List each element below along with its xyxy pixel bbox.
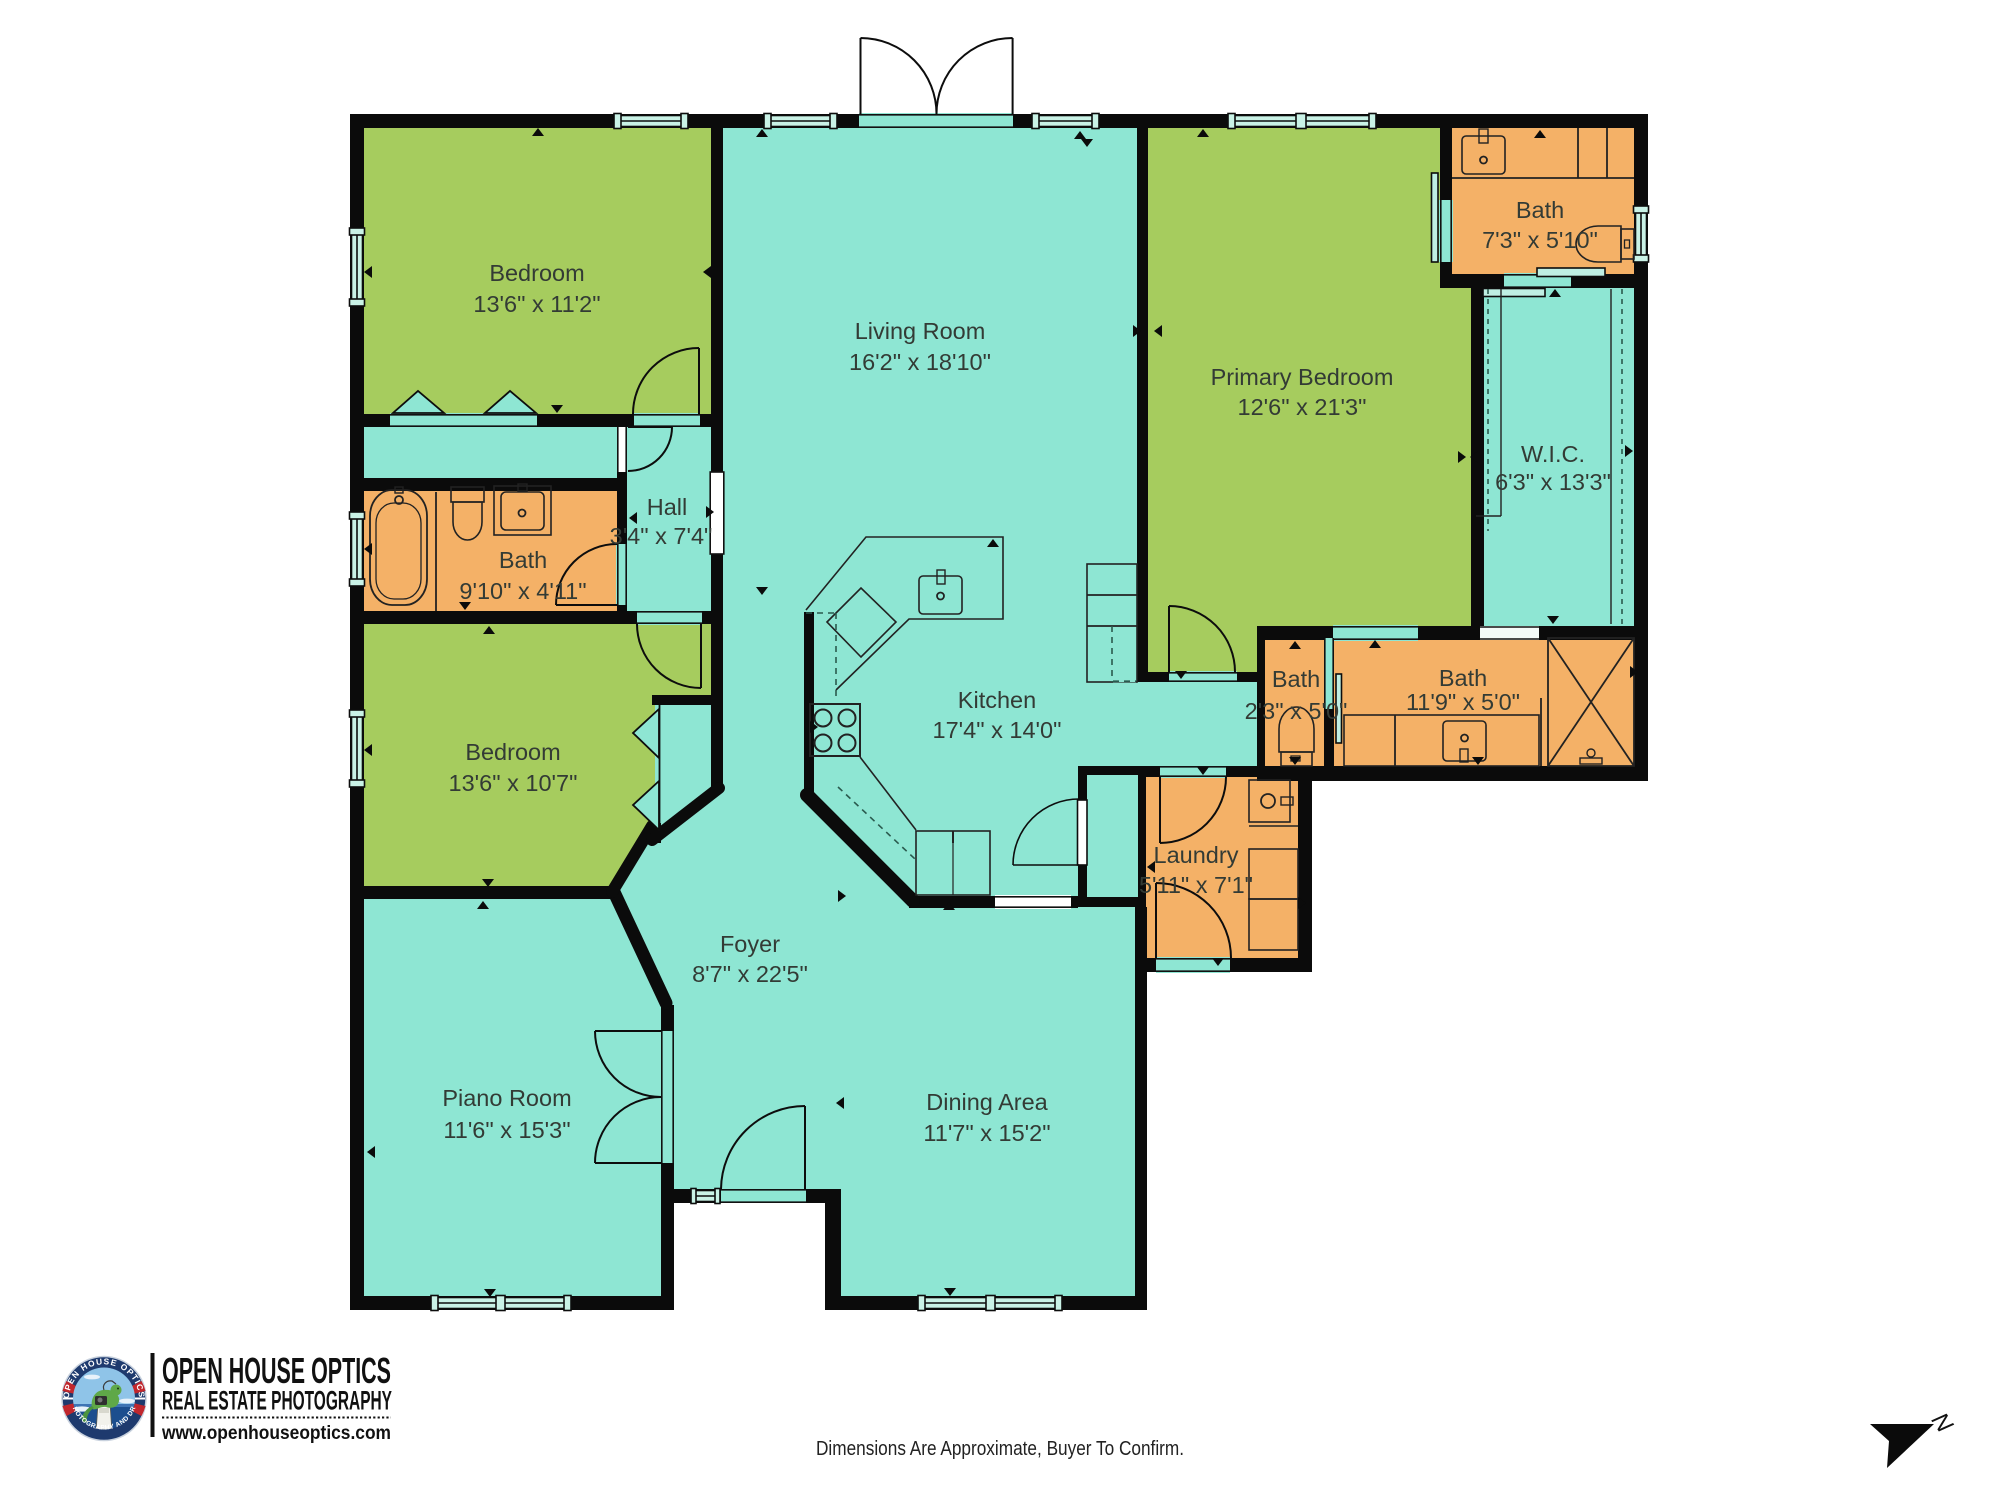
svg-text:13'6" x 10'7": 13'6" x 10'7": [449, 770, 578, 796]
svg-text:11'7" x 15'2": 11'7" x 15'2": [923, 1120, 1050, 1146]
svg-text:Dimensions Are Approximate, Bu: Dimensions Are Approximate, Buyer To Con…: [816, 1438, 1184, 1460]
svg-text:3'4" x 7'4": 3'4" x 7'4": [610, 523, 713, 549]
svg-text:Laundry: Laundry: [1154, 842, 1239, 868]
svg-text:12'6" x 21'3": 12'6" x 21'3": [1238, 394, 1367, 420]
svg-text:8'7" x 22'5": 8'7" x 22'5": [692, 961, 808, 987]
svg-text:11'6" x 15'3": 11'6" x 15'3": [443, 1117, 570, 1143]
svg-text:Living Room: Living Room: [855, 318, 986, 344]
svg-text:Hall: Hall: [647, 494, 687, 520]
svg-text:Piano Room: Piano Room: [442, 1085, 571, 1111]
svg-text:Foyer: Foyer: [720, 931, 780, 957]
svg-text:Kitchen: Kitchen: [958, 687, 1036, 713]
svg-text:Bedroom: Bedroom: [465, 739, 560, 765]
svg-text:Bath: Bath: [499, 547, 547, 573]
svg-text:17'4" x 14'0": 17'4" x 14'0": [933, 717, 1062, 743]
svg-text:Primary Bedroom: Primary Bedroom: [1211, 364, 1394, 390]
svg-text:Dining Area: Dining Area: [926, 1089, 1048, 1115]
svg-text:Bath: Bath: [1516, 197, 1564, 223]
svg-text:13'6" x 11'2": 13'6" x 11'2": [473, 291, 600, 317]
svg-text:www.openhouseoptics.com: www.openhouseoptics.com: [161, 1422, 391, 1444]
svg-text:9'10" x 4'11": 9'10" x 4'11": [459, 578, 586, 604]
svg-text:2'3" x 5'0": 2'3" x 5'0": [1245, 698, 1348, 724]
svg-text:Bedroom: Bedroom: [489, 260, 584, 286]
svg-text:5'11" x 7'1": 5'11" x 7'1": [1139, 872, 1253, 898]
svg-text:11'9" x 5'0": 11'9" x 5'0": [1406, 689, 1520, 715]
svg-text:N: N: [1926, 1408, 1958, 1438]
svg-text:REAL ESTATE PHOTOGRAPHY: REAL ESTATE PHOTOGRAPHY: [162, 1386, 392, 1416]
svg-text:3D PHOTOGRAPHY AND DRONE: 3D PHOTOGRAPHY AND DRONE: [0, 0, 138, 1432]
svg-text:Bath: Bath: [1272, 666, 1320, 692]
svg-text:7'3" x 5'10": 7'3" x 5'10": [1482, 227, 1598, 253]
svg-text:Bath: Bath: [1439, 665, 1487, 691]
svg-text:W.I.C.: W.I.C.: [1521, 441, 1585, 467]
svg-text:16'2" x 18'10": 16'2" x 18'10": [849, 349, 991, 375]
svg-text:6'3" x 13'3": 6'3" x 13'3": [1495, 469, 1611, 495]
